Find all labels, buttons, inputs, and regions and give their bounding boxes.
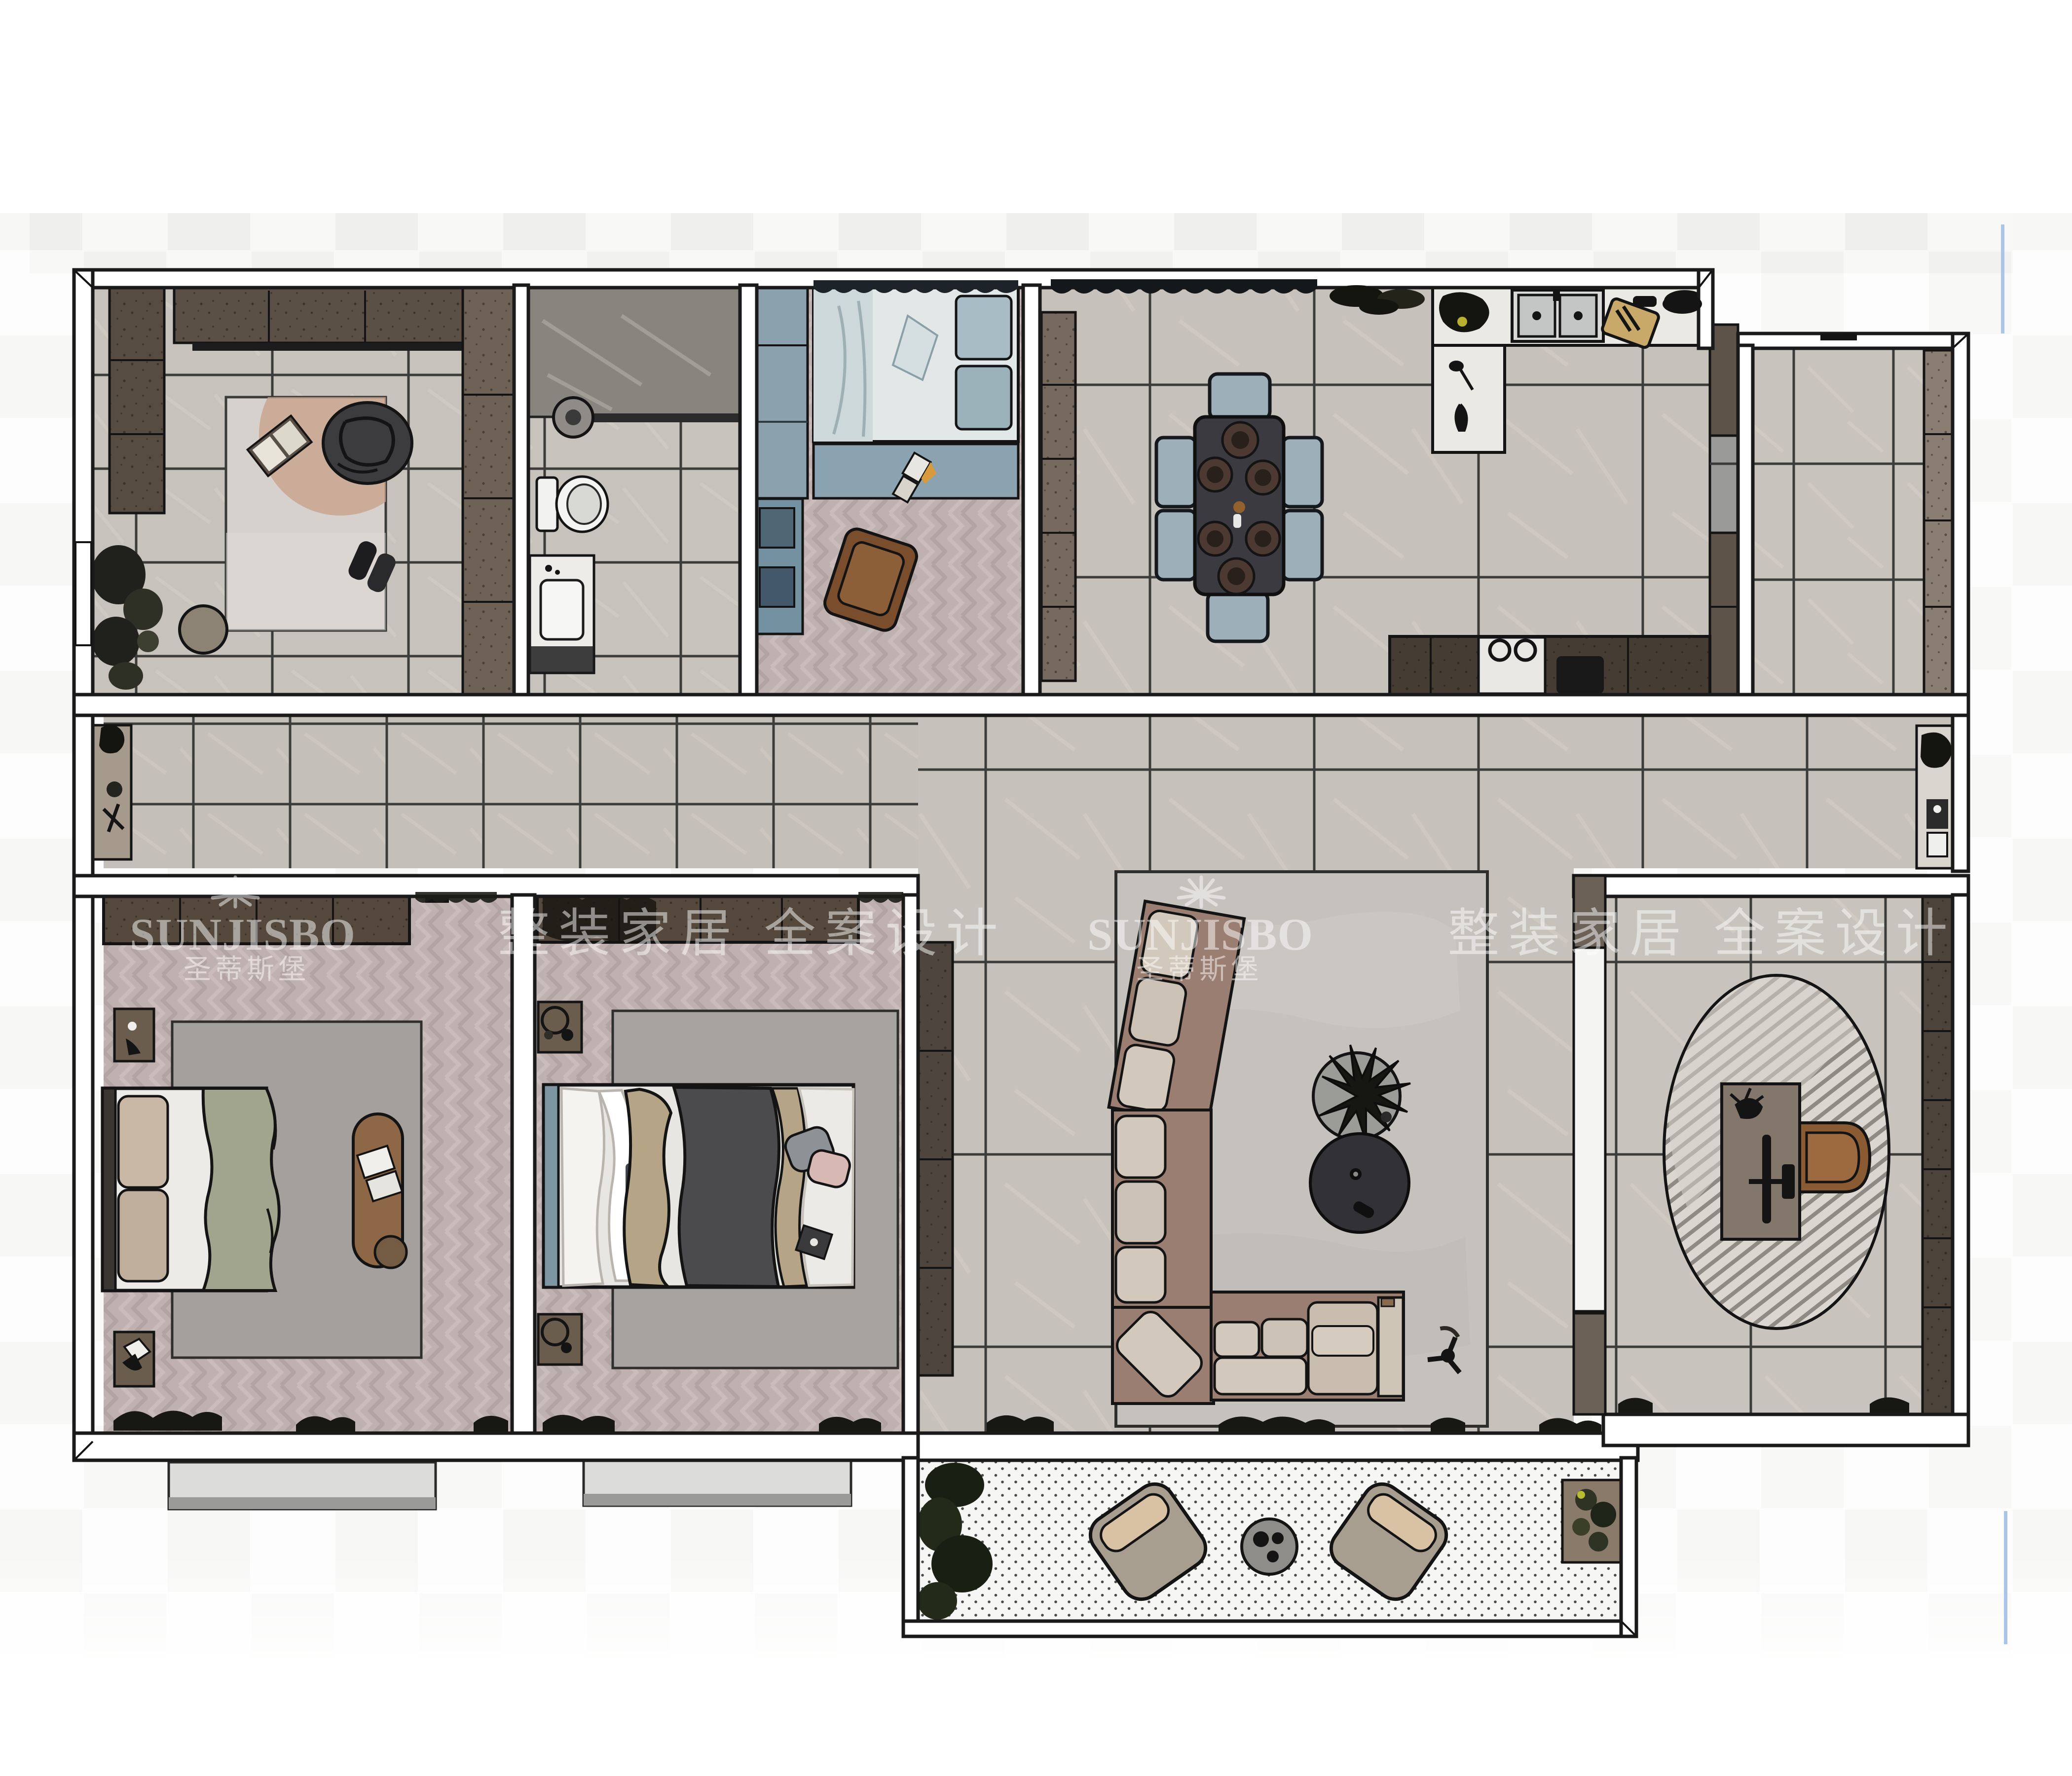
svg-text:整装家居 全案设计: 整装家居 全案设计 (498, 905, 1006, 962)
svg-text:SUNJISBO: SUNJISBO (130, 909, 356, 960)
svg-text:圣蒂斯堡: 圣蒂斯堡 (184, 954, 310, 985)
svg-text:SUNJISBO: SUNJISBO (1087, 909, 1313, 960)
svg-text:整装家居 全案设计: 整装家居 全案设计 (1447, 905, 1956, 962)
svg-text:圣蒂斯堡: 圣蒂斯堡 (1136, 954, 1262, 985)
